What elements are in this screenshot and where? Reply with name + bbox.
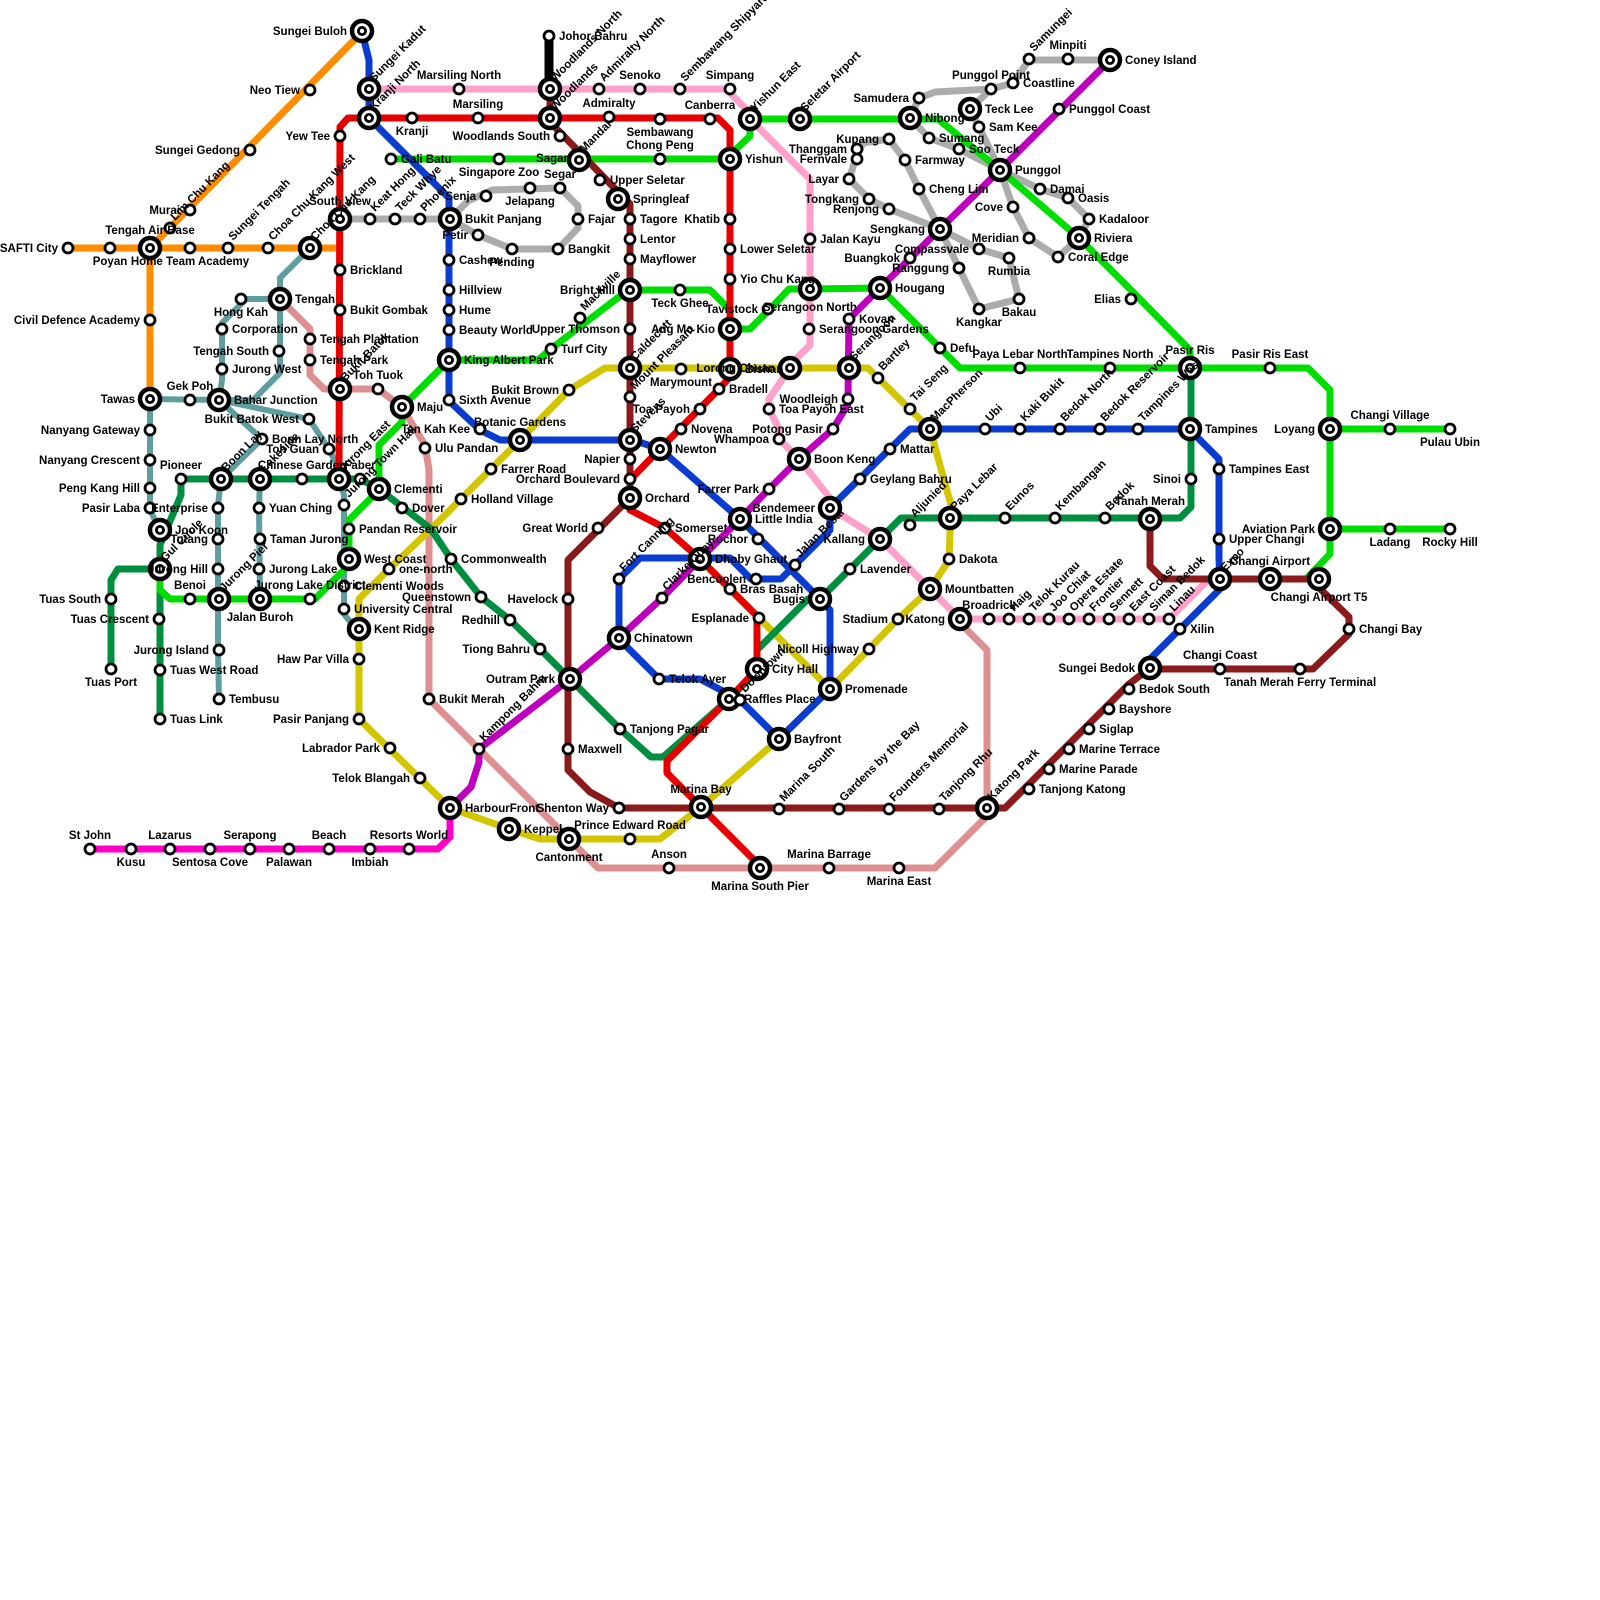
- station-label-stadium: Stadium: [843, 614, 888, 626]
- station-tuas-link[interactable]: [155, 714, 165, 724]
- station-sentosa-cove[interactable]: [205, 844, 215, 854]
- station-yuan-ching[interactable]: [254, 503, 264, 513]
- station-aljunied[interactable]: [905, 520, 915, 530]
- station-keat-hong[interactable]: [365, 214, 375, 224]
- station-serangoon-gardens[interactable]: [804, 324, 814, 334]
- station-layar[interactable]: [844, 174, 854, 184]
- station-paya-lebar-north[interactable]: [1015, 363, 1025, 373]
- station-marker: [444, 325, 454, 335]
- station-canberra[interactable]: [705, 114, 715, 124]
- station-west-coast[interactable]: [339, 549, 359, 569]
- station-yew-tee[interactable]: [335, 131, 345, 141]
- station-beauty-world[interactable]: [444, 325, 454, 335]
- station-maju[interactable]: [392, 397, 412, 417]
- station-sembawang-shipyard[interactable]: [675, 84, 685, 94]
- station-kampong-bahru[interactable]: [474, 744, 484, 754]
- station-jalan-besar[interactable]: [790, 560, 800, 570]
- station-label-kusu: Kusu: [117, 857, 146, 869]
- station-changi-airport-t5[interactable]: [1309, 569, 1329, 589]
- station-tengah-south[interactable]: [274, 346, 284, 356]
- station-chinatown[interactable]: [609, 628, 629, 648]
- station-tuas-port[interactable]: [106, 664, 116, 674]
- station-tuas-crescent[interactable]: [154, 614, 164, 624]
- station-woodlands-south[interactable]: [555, 131, 565, 141]
- station-yio-chu-kang[interactable]: [725, 274, 735, 284]
- station-bangkit[interactable]: [553, 244, 563, 254]
- station-marina-east[interactable]: [894, 863, 904, 873]
- station-sinoi[interactable]: [1186, 474, 1196, 484]
- station-label-tanjong-katong: Tanjong Katong: [1039, 784, 1126, 796]
- station-bedok-south[interactable]: [1124, 684, 1134, 694]
- station-upper-seletar[interactable]: [595, 175, 605, 185]
- station-sungei-buloh[interactable]: [352, 21, 372, 41]
- station-pandan-reservoir[interactable]: [344, 524, 354, 534]
- station-chinese-garden[interactable]: [297, 474, 307, 484]
- station-rumbia[interactable]: [1004, 253, 1014, 263]
- station-tiong-bahru[interactable]: [535, 644, 545, 654]
- station-napier[interactable]: [625, 454, 635, 464]
- station-label-marsiling: Marsiling: [453, 99, 503, 111]
- station-hougang[interactable]: [870, 278, 890, 298]
- station-tanjong-rhu[interactable]: [934, 804, 944, 814]
- station-teck-ghee[interactable]: [675, 285, 685, 295]
- station-orchard[interactable]: [620, 488, 640, 508]
- station-khatib[interactable]: [725, 214, 735, 224]
- transit-map-page: SAFTI CityPoyanTengah Air BaseHome Team …: [0, 0, 1600, 1600]
- station-esplanade[interactable]: [754, 613, 764, 623]
- station-sennett[interactable]: [1104, 614, 1114, 624]
- station-phoenix[interactable]: [415, 214, 425, 224]
- station-tagore[interactable]: [625, 214, 635, 224]
- station-label-cantonment: Cantonment: [535, 852, 602, 864]
- station-marine-parade[interactable]: [1044, 764, 1054, 774]
- station-ang-mo-kio[interactable]: [720, 319, 740, 339]
- station-marker: [1008, 202, 1018, 212]
- station-jurong-west[interactable]: [217, 364, 227, 374]
- station-hillview[interactable]: [444, 285, 454, 295]
- station-turf-city[interactable]: [546, 344, 556, 354]
- station-resorts-world[interactable]: [404, 844, 414, 854]
- station-haw-par-villa[interactable]: [354, 654, 364, 664]
- station-lentor[interactable]: [625, 234, 635, 244]
- station-tanjong-katong[interactable]: [1024, 784, 1034, 794]
- station-broadrick[interactable]: [984, 614, 994, 624]
- station-tanah-merah-ferry-terminal[interactable]: [1295, 664, 1305, 674]
- station-fernvale[interactable]: [852, 154, 862, 164]
- station-mayflower[interactable]: [625, 254, 635, 264]
- station-label-clementi: Clementi: [394, 484, 443, 496]
- station-gardens-by-the-bay[interactable]: [834, 804, 844, 814]
- station-renjong[interactable]: [884, 204, 894, 214]
- station-jalan-buroh[interactable]: [250, 589, 270, 609]
- station-elias[interactable]: [1126, 294, 1136, 304]
- station-telok-blangah[interactable]: [415, 773, 425, 783]
- station-stadium[interactable]: [893, 614, 903, 624]
- station-tengah[interactable]: [270, 289, 290, 309]
- station-marker: [494, 154, 504, 164]
- station-kaki-bukit[interactable]: [1015, 424, 1025, 434]
- station-sumang[interactable]: [924, 133, 934, 143]
- station-promenade[interactable]: [820, 679, 840, 699]
- station-clementi[interactable]: [369, 479, 389, 499]
- station-upper-thomson[interactable]: [625, 324, 635, 334]
- station-coney-island[interactable]: [1100, 50, 1120, 70]
- station-marymount[interactable]: [676, 364, 686, 374]
- station-bright-hill[interactable]: [620, 280, 640, 300]
- station-dover[interactable]: [397, 503, 407, 513]
- station-kallang[interactable]: [870, 529, 890, 549]
- station-hong-kah[interactable]: [236, 294, 246, 304]
- station-mackville[interactable]: [575, 313, 585, 323]
- station-pasir-ris-east[interactable]: [1265, 363, 1275, 373]
- station-singapore-zoo[interactable]: [494, 154, 504, 164]
- station-tuas-south[interactable]: [106, 594, 116, 604]
- station-farrer-road[interactable]: [486, 464, 496, 474]
- station-punggol[interactable]: [990, 160, 1010, 180]
- station-mattar[interactable]: [885, 444, 895, 454]
- station-aviation-park[interactable]: [1320, 519, 1340, 539]
- station-label-changi-airport-t5: Changi Airport T5: [1271, 592, 1368, 604]
- station-joo-koon[interactable]: [150, 520, 170, 540]
- station-tai-seng[interactable]: [905, 404, 915, 414]
- station-kadaloor[interactable]: [1084, 214, 1094, 224]
- station-east-coast[interactable]: [1124, 614, 1134, 624]
- station-bugis[interactable]: [810, 589, 830, 609]
- station-marina-bay[interactable]: [691, 797, 711, 817]
- station-jalan-kayu[interactable]: [805, 234, 815, 244]
- station-nicoll-highway[interactable]: [864, 644, 874, 654]
- station-cove[interactable]: [1008, 202, 1018, 212]
- station-enterprise[interactable]: [213, 503, 223, 513]
- station-kusu[interactable]: [126, 844, 136, 854]
- station-frontier[interactable]: [1084, 614, 1094, 624]
- station-ranggung[interactable]: [954, 263, 964, 273]
- station-jurong-island[interactable]: [214, 645, 224, 655]
- station-segar[interactable]: [555, 183, 565, 193]
- station-holland-village[interactable]: [456, 494, 466, 504]
- station-riviera[interactable]: [1069, 228, 1089, 248]
- station-label-haw-par-villa: Haw Par Villa: [277, 654, 350, 666]
- station-ladang[interactable]: [1385, 524, 1395, 534]
- station-punggol-coast[interactable]: [1054, 104, 1064, 114]
- station-ulu-pandan[interactable]: [420, 443, 430, 453]
- station-pulau-ubin[interactable]: [1445, 424, 1455, 434]
- station-beach[interactable]: [324, 844, 334, 854]
- station-label-nanyang-gateway: Nanyang Gateway: [41, 425, 141, 437]
- station-changi-airport[interactable]: [1260, 569, 1280, 589]
- station-tembusu[interactable]: [214, 694, 224, 704]
- station-yishun[interactable]: [720, 149, 740, 169]
- station-siman-bedok[interactable]: [1144, 614, 1154, 624]
- station-geylang-bahru[interactable]: [855, 474, 865, 484]
- station-harbourfront[interactable]: [440, 798, 460, 818]
- station-springleaf[interactable]: [608, 189, 628, 209]
- station-label-yio-chu-kang: Yio Chu Kang: [740, 274, 815, 286]
- station-senja[interactable]: [481, 191, 491, 201]
- station-soo-teck[interactable]: [954, 144, 964, 154]
- station-kupang[interactable]: [884, 134, 894, 144]
- station-tampines-east[interactable]: [1214, 464, 1224, 474]
- station-tanjong-pagar[interactable]: [615, 724, 625, 734]
- station-havelock[interactable]: [563, 594, 573, 604]
- station-opera-estate[interactable]: [1064, 614, 1074, 624]
- station-orchard-boulevard[interactable]: [625, 474, 635, 484]
- station-benoi[interactable]: [185, 594, 195, 604]
- station-johor-bahru[interactable]: [544, 31, 554, 41]
- station-toh-tuok[interactable]: [373, 384, 383, 394]
- interchange-inner-ring: [726, 155, 733, 162]
- station-chong-peng[interactable]: [655, 154, 665, 164]
- station-jelapang[interactable]: [525, 183, 535, 193]
- station-marker: [297, 474, 307, 484]
- station-samungei[interactable]: [1024, 54, 1034, 64]
- station-fajar[interactable]: [573, 214, 583, 224]
- station-gali-batu[interactable]: [386, 154, 396, 164]
- station-bukit-brown[interactable]: [564, 385, 574, 395]
- station-serapong[interactable]: [245, 844, 255, 854]
- station-founders-memorial[interactable]: [884, 804, 894, 814]
- station-anson[interactable]: [664, 863, 674, 873]
- station-bahar-junction[interactable]: [209, 390, 229, 410]
- station-rochor[interactable]: [753, 534, 763, 544]
- station-marker: [1024, 784, 1034, 794]
- station-bakau[interactable]: [1014, 294, 1024, 304]
- station-marker: [845, 564, 855, 574]
- station-tongkang[interactable]: [864, 194, 874, 204]
- station-defu[interactable]: [935, 343, 945, 353]
- station-woodleigh[interactable]: [843, 394, 853, 404]
- station-marker: [1133, 424, 1143, 434]
- station-labrador-park[interactable]: [385, 743, 395, 753]
- station-changi-coast[interactable]: [1215, 664, 1225, 674]
- station-senoko[interactable]: [635, 84, 645, 94]
- station-dakota[interactable]: [944, 554, 954, 564]
- station-simpang[interactable]: [725, 84, 735, 94]
- station-marina-south-pier[interactable]: [750, 858, 770, 878]
- station-eunos[interactable]: [1000, 513, 1010, 523]
- station-sungei-bedok[interactable]: [1140, 658, 1160, 678]
- station-minpiti[interactable]: [1063, 54, 1073, 64]
- station-gek-poh[interactable]: [185, 395, 195, 405]
- station-label-jurong-hill: Jurong Hill: [148, 564, 208, 576]
- station-bedok-north[interactable]: [1055, 424, 1065, 434]
- station-bedok[interactable]: [1100, 513, 1110, 523]
- station-imbiah[interactable]: [365, 844, 375, 854]
- station-meridian[interactable]: [1024, 233, 1034, 243]
- station-kent-ridge[interactable]: [349, 619, 369, 639]
- station-newton[interactable]: [650, 439, 670, 459]
- station-safti-city[interactable]: [63, 243, 73, 253]
- station-university-central[interactable]: [339, 604, 349, 614]
- station-marine-terrace[interactable]: [1064, 744, 1074, 754]
- station-boon-keng[interactable]: [789, 449, 809, 469]
- station-label-changi-coast: Changi Coast: [1183, 650, 1257, 662]
- station-pioneer[interactable]: [176, 474, 186, 484]
- station-bukit-panjang[interactable]: [440, 209, 460, 229]
- station-lazarus[interactable]: [165, 844, 175, 854]
- station-damai[interactable]: [1035, 184, 1045, 194]
- station-label-changi-village: Changi Village: [1350, 410, 1429, 422]
- station-label-siglap: Siglap: [1099, 724, 1134, 736]
- station-label-tengah-park: Tengah Park: [320, 355, 389, 367]
- station-nanyang-gateway[interactable]: [145, 425, 155, 435]
- interchange-inner-ring: [926, 585, 933, 592]
- station-kovan[interactable]: [844, 314, 854, 324]
- station-telok-kurau[interactable]: [1024, 614, 1034, 624]
- station-joo-chiat[interactable]: [1044, 614, 1054, 624]
- station-tuas-west-road[interactable]: [155, 665, 165, 675]
- station-farrer-park[interactable]: [764, 484, 774, 494]
- station-loyang[interactable]: [1320, 419, 1340, 439]
- station-commonwealth[interactable]: [446, 554, 456, 564]
- station-sungei-tengah[interactable]: [223, 243, 233, 253]
- station-haig[interactable]: [1004, 614, 1014, 624]
- station-jurong-town-hall[interactable]: [339, 500, 349, 510]
- station-label-university-central: University Central: [354, 604, 452, 616]
- station-redhill[interactable]: [505, 615, 515, 625]
- station-marker: [1186, 474, 1196, 484]
- station-marina-barrage[interactable]: [824, 863, 834, 873]
- station-fort-canning[interactable]: [614, 574, 624, 584]
- station-marina-south[interactable]: [774, 804, 784, 814]
- station-admiralty-north[interactable]: [594, 84, 604, 94]
- station-corporation[interactable]: [217, 324, 227, 334]
- station-civil-defence-academy[interactable]: [145, 315, 155, 325]
- station-mountbatten[interactable]: [920, 579, 940, 599]
- interchange-inner-ring: [806, 285, 813, 292]
- station-shenton-way[interactable]: [614, 803, 624, 813]
- station-novena[interactable]: [676, 424, 686, 434]
- station-st-john[interactable]: [85, 844, 95, 854]
- station-upper-changi[interactable]: [1214, 534, 1224, 544]
- station-coral-edge[interactable]: [1053, 252, 1063, 262]
- station-changi-village[interactable]: [1385, 424, 1395, 434]
- station-keppel[interactable]: [499, 819, 519, 839]
- station-nanyang-crescent[interactable]: [145, 455, 155, 465]
- station-choa-chu-kang-west[interactable]: [263, 243, 273, 253]
- station-poyan[interactable]: [105, 243, 115, 253]
- station-tampines[interactable]: [1180, 419, 1200, 439]
- station-bedok-reservoir[interactable]: [1095, 424, 1105, 434]
- station-telok-ayer[interactable]: [654, 674, 664, 684]
- station-jurong-lake-district[interactable]: [305, 594, 315, 604]
- station-mount-pleasant[interactable]: [625, 392, 635, 402]
- station-marker: [725, 84, 735, 94]
- station-sixth-avenue[interactable]: [444, 395, 454, 405]
- station-sengkang[interactable]: [930, 219, 950, 239]
- station-little-india[interactable]: [730, 509, 750, 529]
- station-changi-bay[interactable]: [1344, 624, 1354, 634]
- station-label-beauty-world: Beauty World: [459, 325, 533, 337]
- station-kranji[interactable]: [407, 113, 417, 123]
- station-prince-edward-road[interactable]: [625, 834, 635, 844]
- station-kembangan[interactable]: [1050, 513, 1060, 523]
- station-marsiling[interactable]: [473, 113, 483, 123]
- station-marker: [324, 844, 334, 854]
- station-rocky-hill[interactable]: [1445, 524, 1455, 534]
- station-potong-pasir[interactable]: [828, 424, 838, 434]
- station-tampines-west[interactable]: [1133, 424, 1143, 434]
- station-petir[interactable]: [473, 230, 483, 240]
- station-cashew[interactable]: [444, 255, 454, 265]
- station-punggol-point[interactable]: [986, 84, 996, 94]
- interchange-inner-ring: [826, 504, 833, 511]
- station-kangkar[interactable]: [974, 304, 984, 314]
- station-bukit-gombak[interactable]: [335, 305, 345, 315]
- station-linau[interactable]: [1164, 614, 1174, 624]
- station-ubi[interactable]: [980, 424, 990, 434]
- station-home-team-academy[interactable]: [185, 243, 195, 253]
- station-bukit-batok-west[interactable]: [304, 414, 314, 424]
- station-farmway[interactable]: [900, 155, 910, 165]
- station-label-paya-lebar-north: Paya Lebar North: [972, 349, 1067, 361]
- station-hume[interactable]: [444, 305, 454, 315]
- station-great-world[interactable]: [593, 523, 603, 533]
- station-bradell[interactable]: [714, 384, 724, 394]
- station-lavender[interactable]: [845, 564, 855, 574]
- station-label-little-india: Little India: [755, 514, 813, 526]
- station-label-yew-tee: Yew Tee: [285, 131, 330, 143]
- station-maxwell[interactable]: [563, 744, 573, 754]
- station-queenstown[interactable]: [476, 592, 486, 602]
- station-neo-tiew[interactable]: [305, 85, 315, 95]
- station-bukit-merah[interactable]: [424, 694, 434, 704]
- station-katong[interactable]: [950, 609, 970, 629]
- station-lower-seletar[interactable]: [725, 244, 735, 254]
- station-xilin[interactable]: [1175, 624, 1185, 634]
- station-sungei-gedong[interactable]: [245, 145, 255, 155]
- station-brickland[interactable]: [335, 265, 345, 275]
- station-nibong[interactable]: [900, 108, 920, 128]
- station-toa-payoh-east[interactable]: [764, 404, 774, 414]
- station-marsiling-north[interactable]: [454, 84, 464, 94]
- station-cheng-lim[interactable]: [914, 184, 924, 194]
- station-teck-whye[interactable]: [390, 214, 400, 224]
- station-bencoolen[interactable]: [751, 574, 761, 584]
- station-bartley[interactable]: [873, 373, 883, 383]
- station-tawas[interactable]: [140, 389, 160, 409]
- station-tengah-plantation[interactable]: [305, 334, 315, 344]
- station-sembawang[interactable]: [655, 114, 665, 124]
- station-compassvale[interactable]: [974, 244, 984, 254]
- station-label-toh-guan: Toh Guan: [266, 444, 319, 456]
- station-jurong-lake[interactable]: [254, 564, 264, 574]
- station-botanic-gardens[interactable]: [510, 430, 530, 450]
- station-pending[interactable]: [507, 244, 517, 254]
- station-pasir-panjang[interactable]: [354, 714, 364, 724]
- station-tengah-air-base[interactable]: [140, 238, 160, 258]
- station-peng-kang-hill[interactable]: [145, 483, 155, 493]
- station-sam-kee[interactable]: [974, 122, 984, 132]
- station-bayfront[interactable]: [769, 729, 789, 749]
- station-toa-payoh[interactable]: [695, 404, 705, 414]
- station-tengah-park[interactable]: [305, 355, 315, 365]
- station-bayshore[interactable]: [1104, 704, 1114, 714]
- interchange-inner-ring: [876, 535, 883, 542]
- station-marker: [615, 724, 625, 734]
- station-outram-park[interactable]: [560, 669, 580, 689]
- station-tanah-merah[interactable]: [1140, 509, 1160, 529]
- station-palawan[interactable]: [284, 844, 294, 854]
- station-marker: [1015, 363, 1025, 373]
- station-marker: [546, 344, 556, 354]
- station-jurong-hill[interactable]: [213, 564, 223, 574]
- station-king-albert-park[interactable]: [439, 350, 459, 370]
- station-siglap[interactable]: [1084, 724, 1094, 734]
- station-clarke-quay[interactable]: [657, 593, 667, 603]
- station-marker: [1215, 664, 1225, 674]
- station-samudera[interactable]: [914, 93, 924, 103]
